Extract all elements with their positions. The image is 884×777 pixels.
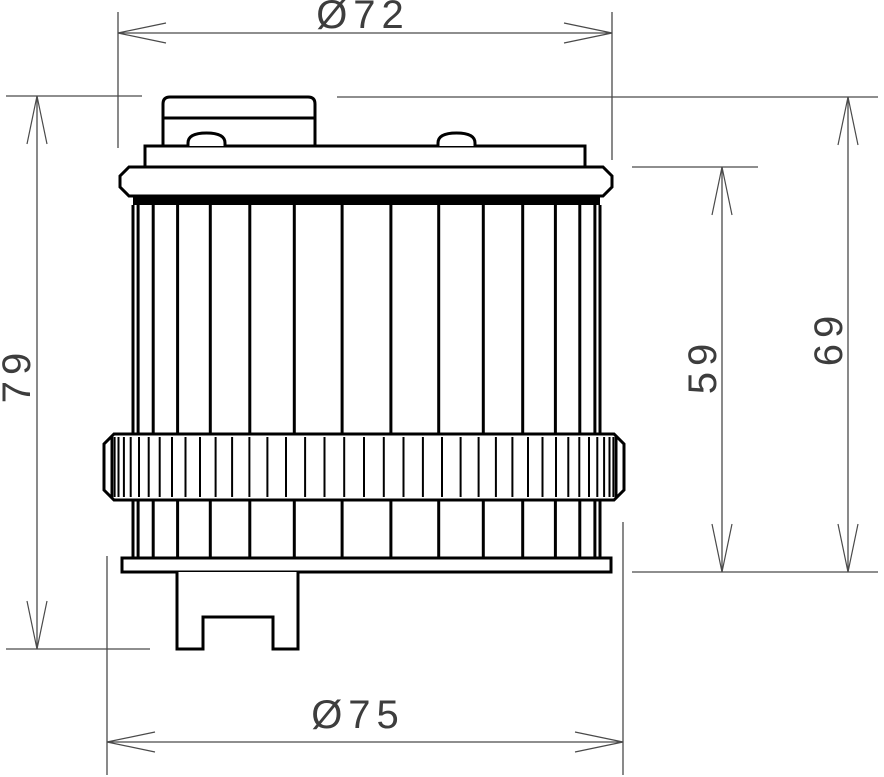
filter-dimension-drawing: Ø72 Ø75 79 59 69 [0,0,884,777]
top-connector-block [163,97,315,146]
upper-flange-plate [145,146,585,167]
dimension-label-overall-height: 79 [0,347,39,404]
dimension-label-body-height-inner: 59 [681,338,725,395]
base-plate [122,558,611,572]
bottom-mount-stub [177,572,298,649]
technical-drawing-canvas: Ø72 Ø75 79 59 69 [0,0,884,777]
dimension-label-body-height-outer: 69 [807,310,851,367]
dimension-body-height-inner: 59 [632,167,758,572]
flange-nub-left [188,133,225,146]
body-flutes [133,205,600,558]
flange-nub-right [438,133,475,146]
top-cap [120,167,612,196]
dimension-label-bottom-diameter: Ø75 [311,693,405,737]
filter-part [104,97,624,649]
dimension-label-top-diameter: Ø72 [316,0,410,37]
